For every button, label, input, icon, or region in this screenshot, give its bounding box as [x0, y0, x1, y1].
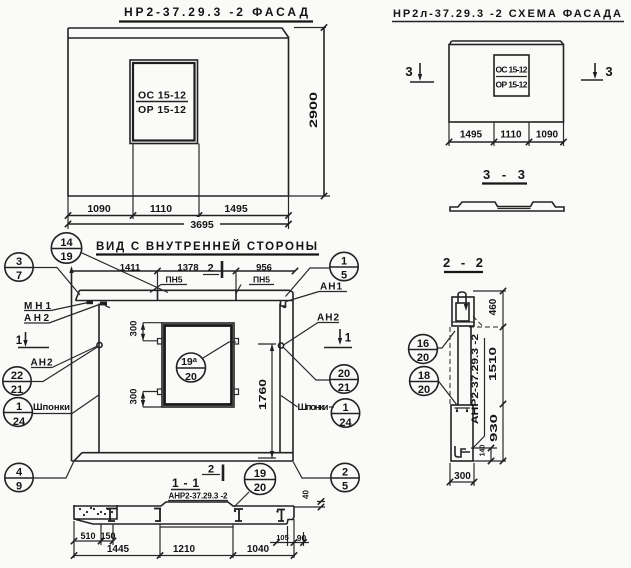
svg-text:1090: 1090 — [536, 130, 559, 141]
svg-text:1: 1 — [345, 333, 352, 345]
svg-text:5: 5 — [342, 481, 348, 493]
svg-text:1: 1 — [16, 335, 23, 347]
svg-text:40: 40 — [302, 490, 311, 499]
svg-text:19: 19 — [60, 251, 72, 263]
svg-text:ОС 15-12: ОС 15-12 — [138, 90, 186, 102]
svg-text:1110: 1110 — [500, 130, 522, 141]
svg-text:21: 21 — [338, 382, 350, 394]
svg-text:20: 20 — [185, 371, 197, 383]
svg-text:20: 20 — [254, 482, 266, 494]
svg-text:ОР 15-12: ОР 15-12 — [138, 104, 186, 116]
svg-text:3 - 3: 3 - 3 — [483, 167, 525, 182]
svg-text:2: 2 — [207, 263, 213, 275]
svg-text:20: 20 — [418, 384, 430, 396]
svg-text:300: 300 — [454, 471, 471, 482]
svg-text:1: 1 — [341, 256, 347, 268]
svg-text:ПН5: ПН5 — [166, 275, 183, 285]
svg-text:300: 300 — [129, 389, 140, 405]
svg-text:20: 20 — [417, 352, 429, 364]
svg-text:140: 140 — [480, 445, 487, 457]
svg-text:510: 510 — [80, 531, 95, 541]
svg-text:3695: 3695 — [190, 219, 214, 231]
svg-text:1: 1 — [342, 402, 348, 414]
svg-text:АН2: АН2 — [317, 313, 339, 324]
svg-text:АНР2-37.29.3 -2: АНР2-37.29.3 -2 — [169, 492, 229, 501]
svg-text:Шпонки: Шпонки — [298, 402, 329, 413]
svg-text:АН1: АН1 — [320, 282, 342, 293]
svg-text:300: 300 — [129, 321, 140, 337]
svg-text:1445: 1445 — [107, 544, 130, 555]
svg-text:2: 2 — [342, 467, 348, 479]
svg-text:9: 9 — [16, 481, 22, 493]
svg-text:1510: 1510 — [488, 346, 499, 381]
svg-text:3: 3 — [405, 64, 412, 79]
svg-text:21: 21 — [11, 384, 23, 396]
svg-text:1090: 1090 — [87, 203, 111, 215]
svg-text:19а: 19а — [181, 355, 198, 368]
svg-text:Шпонки: Шпонки — [33, 402, 70, 413]
svg-text:1: 1 — [16, 401, 22, 413]
svg-text:2900: 2900 — [308, 92, 320, 128]
svg-text:1760: 1760 — [257, 379, 269, 410]
svg-text:ВИД С ВНУТРЕННЕЙ СТОРОНЫ: ВИД С ВНУТРЕННЕЙ СТОРОНЫ — [96, 240, 317, 253]
svg-text:1 - 1: 1 - 1 — [172, 476, 199, 490]
svg-text:1378: 1378 — [177, 263, 198, 274]
svg-text:2 - 2: 2 - 2 — [443, 255, 483, 270]
svg-text:22: 22 — [11, 370, 23, 382]
svg-text:18: 18 — [418, 370, 430, 382]
svg-text:НР2-37.29.3 -2 ФАСАД: НР2-37.29.3 -2 ФАСАД — [124, 5, 308, 19]
svg-text:1495: 1495 — [224, 203, 248, 215]
svg-text:1040: 1040 — [247, 544, 270, 555]
svg-text:4: 4 — [16, 467, 23, 479]
svg-text:14: 14 — [60, 237, 73, 249]
svg-text:1210: 1210 — [173, 544, 196, 555]
svg-text:АНР2-37.29.3 -2: АНР2-37.29.3 -2 — [470, 334, 480, 424]
svg-text:460: 460 — [488, 298, 499, 315]
svg-text:1495: 1495 — [460, 130, 483, 141]
svg-text:1110: 1110 — [150, 203, 172, 215]
svg-text:930: 930 — [489, 413, 500, 442]
svg-text:150: 150 — [100, 531, 115, 541]
svg-text:5: 5 — [341, 270, 347, 282]
svg-text:19: 19 — [254, 468, 266, 480]
svg-text:АН2: АН2 — [24, 313, 49, 324]
svg-text:105: 105 — [276, 533, 289, 542]
svg-text:2: 2 — [208, 464, 214, 476]
svg-text:3: 3 — [16, 256, 22, 268]
svg-text:24: 24 — [339, 417, 352, 429]
svg-text:ОР 15-12: ОР 15-12 — [496, 80, 528, 90]
svg-text:ПН5: ПН5 — [253, 275, 270, 285]
svg-text:16: 16 — [417, 338, 429, 350]
svg-text:НР2л-37.29.3 -2 СХЕМА ФАСАДА: НР2л-37.29.3 -2 СХЕМА ФАСАДА — [393, 8, 621, 20]
svg-text:24: 24 — [13, 416, 26, 428]
svg-text:90: 90 — [297, 533, 307, 543]
svg-text:7: 7 — [16, 270, 22, 282]
svg-text:3: 3 — [605, 64, 612, 79]
svg-text:20: 20 — [338, 368, 350, 380]
svg-text:956: 956 — [256, 263, 272, 274]
svg-text:АН2: АН2 — [31, 358, 53, 369]
svg-text:ОС 15-12: ОС 15-12 — [496, 65, 528, 75]
